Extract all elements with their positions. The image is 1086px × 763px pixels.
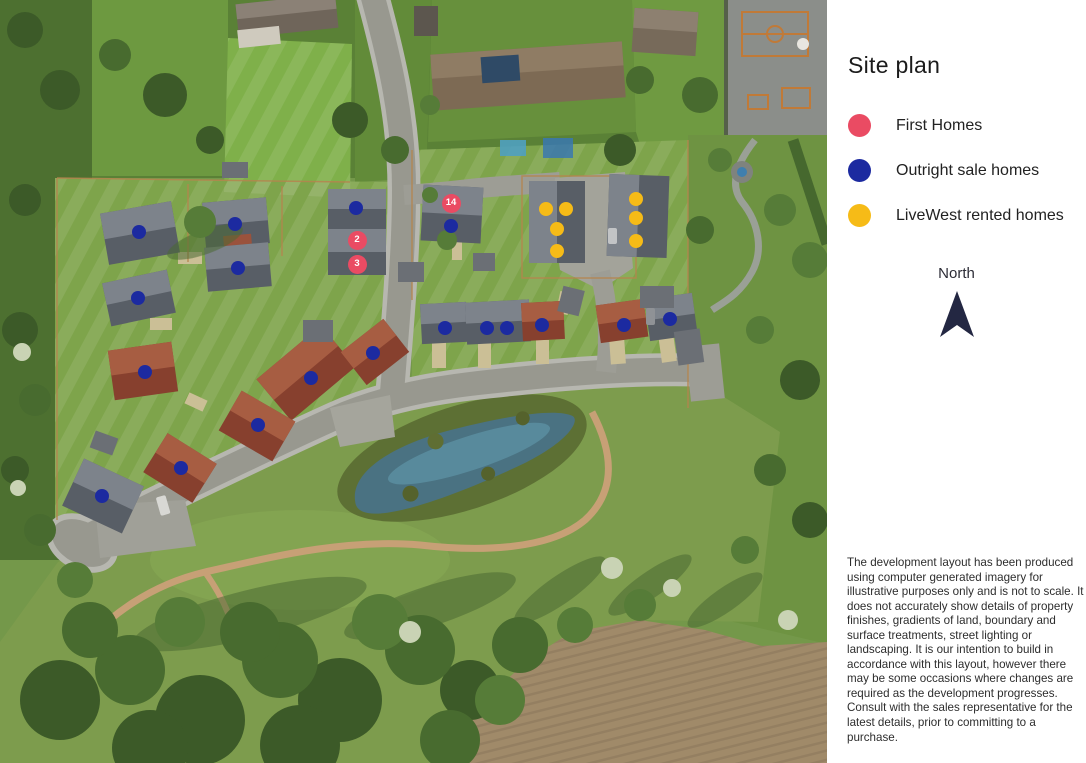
legend-swatch-first	[848, 114, 871, 137]
plot-marker[interactable]	[663, 312, 677, 326]
legend-item-outright: Outright sale homes	[848, 159, 1064, 182]
plot-marker[interactable]	[174, 461, 188, 475]
legend-list: First HomesOutright sale homesLiveWest r…	[848, 114, 1064, 227]
site-plan-map: 1423	[0, 0, 827, 763]
sidebar: Site plan First HomesOutright sale homes…	[827, 0, 1086, 763]
plot-marker[interactable]	[95, 489, 109, 503]
plot-marker[interactable]	[550, 222, 564, 236]
plot-marker[interactable]	[480, 321, 494, 335]
legend-item-rented: LiveWest rented homes	[848, 204, 1064, 227]
north-indicator: North	[827, 265, 1086, 338]
legend-label: Outright sale homes	[896, 162, 1039, 180]
plot-marker[interactable]	[550, 244, 564, 258]
plot-marker[interactable]	[304, 371, 318, 385]
plot-marker[interactable]	[617, 318, 631, 332]
north-arrow-icon	[939, 290, 975, 338]
plot-marker[interactable]	[444, 219, 458, 233]
site-plan-page: 1423 Site plan First HomesOutright sale …	[0, 0, 1086, 763]
plot-marker[interactable]	[366, 346, 380, 360]
plot-marker[interactable]	[629, 192, 643, 206]
plot-marker[interactable]	[559, 202, 573, 216]
plot-marker[interactable]	[131, 291, 145, 305]
legend-label: First Homes	[896, 117, 982, 135]
legend-item-first: First Homes	[848, 114, 1064, 137]
plot-marker[interactable]	[132, 225, 146, 239]
plot-marker[interactable]	[539, 202, 553, 216]
north-label: North	[938, 265, 975, 282]
page-title: Site plan	[848, 52, 940, 79]
plot-marker[interactable]	[349, 201, 363, 215]
legend-swatch-rented	[848, 204, 871, 227]
plot-marker[interactable]	[228, 217, 242, 231]
plot-marker[interactable]	[629, 211, 643, 225]
plot-marker[interactable]	[231, 261, 245, 275]
legend-label: LiveWest rented homes	[896, 207, 1064, 225]
plot-marker[interactable]	[629, 234, 643, 248]
plot-marker[interactable]: 14	[442, 194, 461, 213]
plot-marker[interactable]: 2	[348, 231, 367, 250]
plot-marker[interactable]	[500, 321, 514, 335]
legend-swatch-outright	[848, 159, 871, 182]
plot-markers-layer: 1423	[0, 0, 827, 763]
plot-marker[interactable]	[438, 321, 452, 335]
plot-marker[interactable]: 3	[348, 255, 367, 274]
plot-marker[interactable]	[138, 365, 152, 379]
disclaimer-text: The development layout has been produced…	[847, 556, 1084, 745]
plot-marker[interactable]	[251, 418, 265, 432]
plot-marker[interactable]	[535, 318, 549, 332]
